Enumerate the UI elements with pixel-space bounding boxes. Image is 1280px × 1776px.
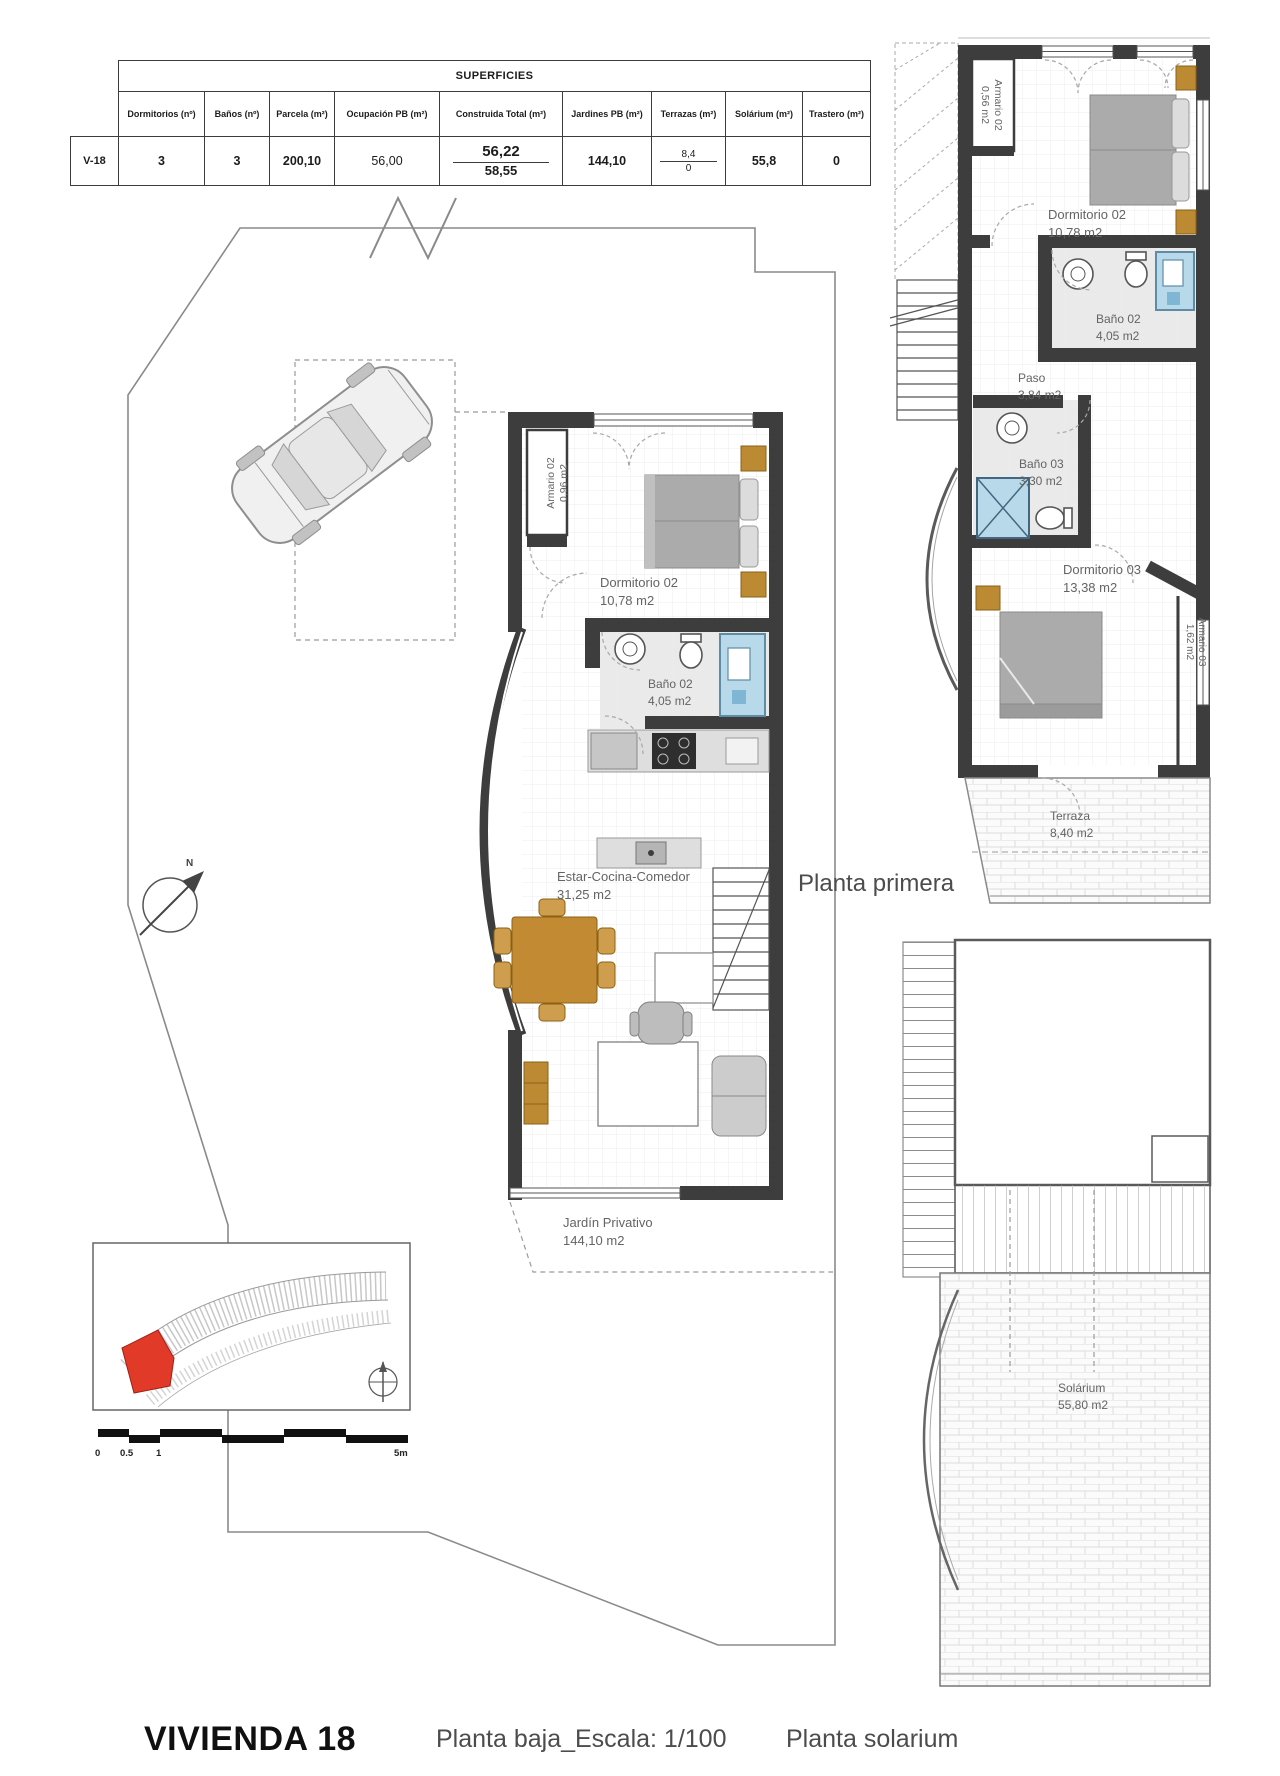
table-title: SUPERFICIES	[119, 61, 871, 92]
planta-baja-caption: Planta baja_Escala: 1/100	[436, 1725, 727, 1754]
p1-dormitorio03-label: Dormitorio 03 13,38 m2	[1063, 561, 1141, 597]
sheet-title: VIVIENDA 18	[144, 1720, 356, 1759]
floor-plan-sheet: SUPERFICIES Dormitorios (nº) Baños (nº) …	[0, 0, 1280, 1776]
terrazas-a: 8,4	[682, 149, 696, 160]
p1-bano03-label: Baño 03 3,30 m2	[1019, 456, 1064, 490]
p1-bano02-label: Baño 02 4,05 m2	[1096, 311, 1141, 345]
col-header-construida: Construida Total (m²)	[440, 92, 563, 137]
col-header-ocupacion: Ocupación PB (m²)	[335, 92, 440, 137]
col-header-banos: Baños (nº)	[205, 92, 270, 137]
terrazas-b: 0	[686, 163, 692, 174]
superficies-table: SUPERFICIES Dormitorios (nº) Baños (nº) …	[70, 60, 871, 186]
pb-dormitorio02-label: Dormitorio 02 10,78 m2	[600, 574, 678, 610]
construida-total: 58,55	[485, 164, 518, 178]
cell-construida: 56,22 58,55	[440, 137, 563, 186]
solarium-label: Solárium 55,80 m2	[1058, 1380, 1108, 1414]
scale-tick-05: 0.5	[120, 1448, 133, 1459]
col-header-parcela: Parcela (m²)	[270, 92, 335, 137]
col-header-solarium: Solárium (m²)	[726, 92, 803, 137]
stairs-pb	[713, 868, 769, 1010]
scale-tick-0: 0	[95, 1448, 100, 1459]
cell-banos: 3	[205, 137, 270, 186]
cell-parcela: 200,10	[270, 137, 335, 186]
p1-armario02-label: Armario 02 0,56 m2	[979, 60, 1004, 150]
col-header-trastero: Trastero (m²)	[803, 92, 871, 137]
stairs-p1	[890, 280, 965, 420]
scale-tick-5m: 5m	[394, 1448, 408, 1459]
col-header-terrazas: Terrazas (m²)	[652, 92, 726, 137]
cell-trastero: 0	[803, 137, 871, 186]
p1-armario03-label: Armario 03 1,62 m2	[1183, 602, 1207, 682]
plan-planta-solarium	[903, 940, 1210, 1686]
pb-armario02-label: Armario 02 0,96 m2	[545, 428, 570, 538]
cell-ocupacion: 56,00	[335, 137, 440, 186]
row-label: V-18	[71, 137, 119, 186]
site-map-inset	[93, 1243, 410, 1410]
planta-solarium-caption: Planta solarium	[786, 1725, 958, 1754]
p1-terraza-label: Terraza 8,40 m2	[1050, 808, 1093, 842]
cell-dormitorios: 3	[119, 137, 205, 186]
house-planta-baja	[484, 412, 783, 1200]
scale-bar	[98, 1429, 408, 1443]
col-header-dormitorios: Dormitorios (nº)	[119, 92, 205, 137]
scale-tick-1: 1	[156, 1448, 161, 1459]
car-top-view	[217, 350, 447, 559]
planta-primera-caption: Planta primera	[798, 870, 954, 898]
col-header-jardines: Jardines PB (m²)	[563, 92, 652, 137]
construida-pb: 56,22	[482, 144, 520, 161]
cell-solarium: 55,8	[726, 137, 803, 186]
north-letter: N	[186, 858, 193, 869]
pb-estar-label: Estar-Cocina-Comedor 31,25 m2	[557, 868, 690, 904]
p1-paso-label: Paso 3,84 m2	[1018, 370, 1061, 404]
p1-dormitorio02-label: Dormitorio 02 10,78 m2	[1048, 206, 1126, 242]
pb-jardin-label: Jardín Privativo 144,10 m2	[563, 1214, 653, 1250]
cell-terrazas: 8,4 0	[652, 137, 726, 186]
cell-jardines: 144,10	[563, 137, 652, 186]
solarium-terrace	[940, 1273, 1210, 1686]
north-arrow-icon	[140, 871, 204, 935]
pb-bano02-label: Baño 02 4,05 m2	[648, 676, 693, 710]
